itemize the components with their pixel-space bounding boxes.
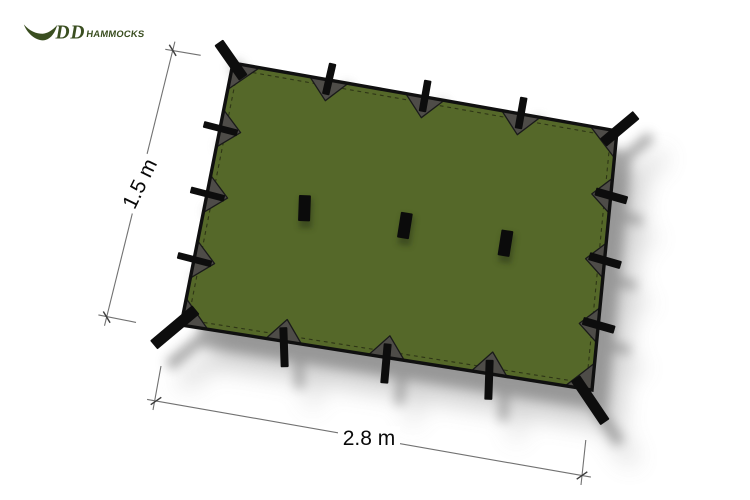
svg-text:2.8 m: 2.8 m [343,427,396,450]
svg-text:HAMMOCKS: HAMMOCKS [86,29,145,40]
svg-text:DD: DD [55,23,86,44]
